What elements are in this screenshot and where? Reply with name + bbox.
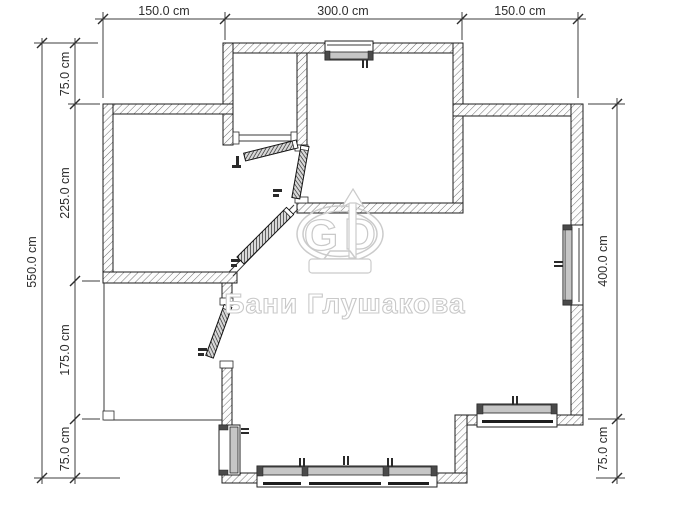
door-handle	[232, 165, 241, 168]
wall-segment	[223, 43, 233, 145]
window-bottom-right	[477, 396, 557, 427]
door-handle	[198, 353, 204, 356]
wall-segment	[103, 272, 237, 283]
terrace-outline	[103, 283, 222, 420]
doors	[198, 140, 309, 358]
watermark-logo: G D	[297, 189, 383, 273]
door-handle	[231, 259, 240, 262]
dim-label-left-4: 75.0 cm	[58, 427, 72, 471]
window-handle	[512, 396, 514, 405]
dim-label-top-center: 300.0 cm	[317, 4, 368, 18]
window-handle	[362, 60, 364, 68]
wall-segment	[103, 104, 113, 283]
window-bottom-left	[219, 425, 249, 475]
watermark-text: Бани Глушакова	[224, 288, 465, 319]
wall-segment	[297, 53, 307, 145]
dim-label-left-2: 225.0 cm	[58, 167, 72, 218]
door-leaf-diagonal	[237, 207, 294, 264]
floor-plan-canvas: G D Бани Глушакова 150.0 cm 300.0 cm 150…	[0, 0, 690, 510]
window-handle	[366, 60, 368, 68]
door-leaf-steam-room	[292, 145, 309, 199]
logo-base	[309, 259, 371, 273]
door-handle	[198, 348, 207, 351]
window-handle	[554, 261, 563, 263]
dim-label-left-1: 75.0 cm	[58, 52, 72, 96]
window-bottom-triple	[257, 456, 437, 487]
door-jamb	[233, 132, 239, 144]
door-handle	[273, 189, 282, 192]
wall-segment	[453, 104, 583, 116]
door-handle	[236, 156, 239, 165]
dim-label-left-3: 175.0 cm	[58, 324, 72, 375]
window-top	[325, 41, 373, 68]
door-leaf-small-room	[244, 140, 298, 161]
logo-stem	[349, 196, 356, 258]
window-handle	[303, 458, 305, 467]
wall-segment	[453, 43, 463, 213]
window-handle	[554, 265, 563, 267]
dim-label-left-total: 550.0 cm	[25, 236, 39, 287]
window-handle	[347, 456, 349, 465]
dim-label-right-1: 400.0 cm	[596, 235, 610, 286]
dim-label-top-left: 150.0 cm	[138, 4, 189, 18]
window-handle	[299, 458, 301, 467]
window-handle	[391, 458, 393, 467]
window-handle	[241, 432, 249, 434]
wall-segment	[222, 368, 232, 427]
terrace-corner-post	[103, 411, 114, 420]
dim-label-right-2: 75.0 cm	[596, 427, 610, 471]
floor-plan-drawing: G D Бани Глушакова 150.0 cm 300.0 cm 150…	[0, 0, 690, 510]
dimension-right: 400.0 cm 75.0 cm	[588, 98, 625, 484]
door-handle	[273, 194, 279, 197]
window-handle	[343, 456, 345, 465]
window-right	[554, 225, 583, 305]
window-handle	[241, 428, 249, 430]
window-handle	[387, 458, 389, 467]
door-handle	[231, 264, 237, 267]
logo-letter-g: G	[304, 211, 338, 260]
dim-label-top-right: 150.0 cm	[494, 4, 545, 18]
wall-segment	[103, 104, 233, 114]
door-jamb	[220, 361, 233, 368]
window-handle	[516, 396, 518, 405]
